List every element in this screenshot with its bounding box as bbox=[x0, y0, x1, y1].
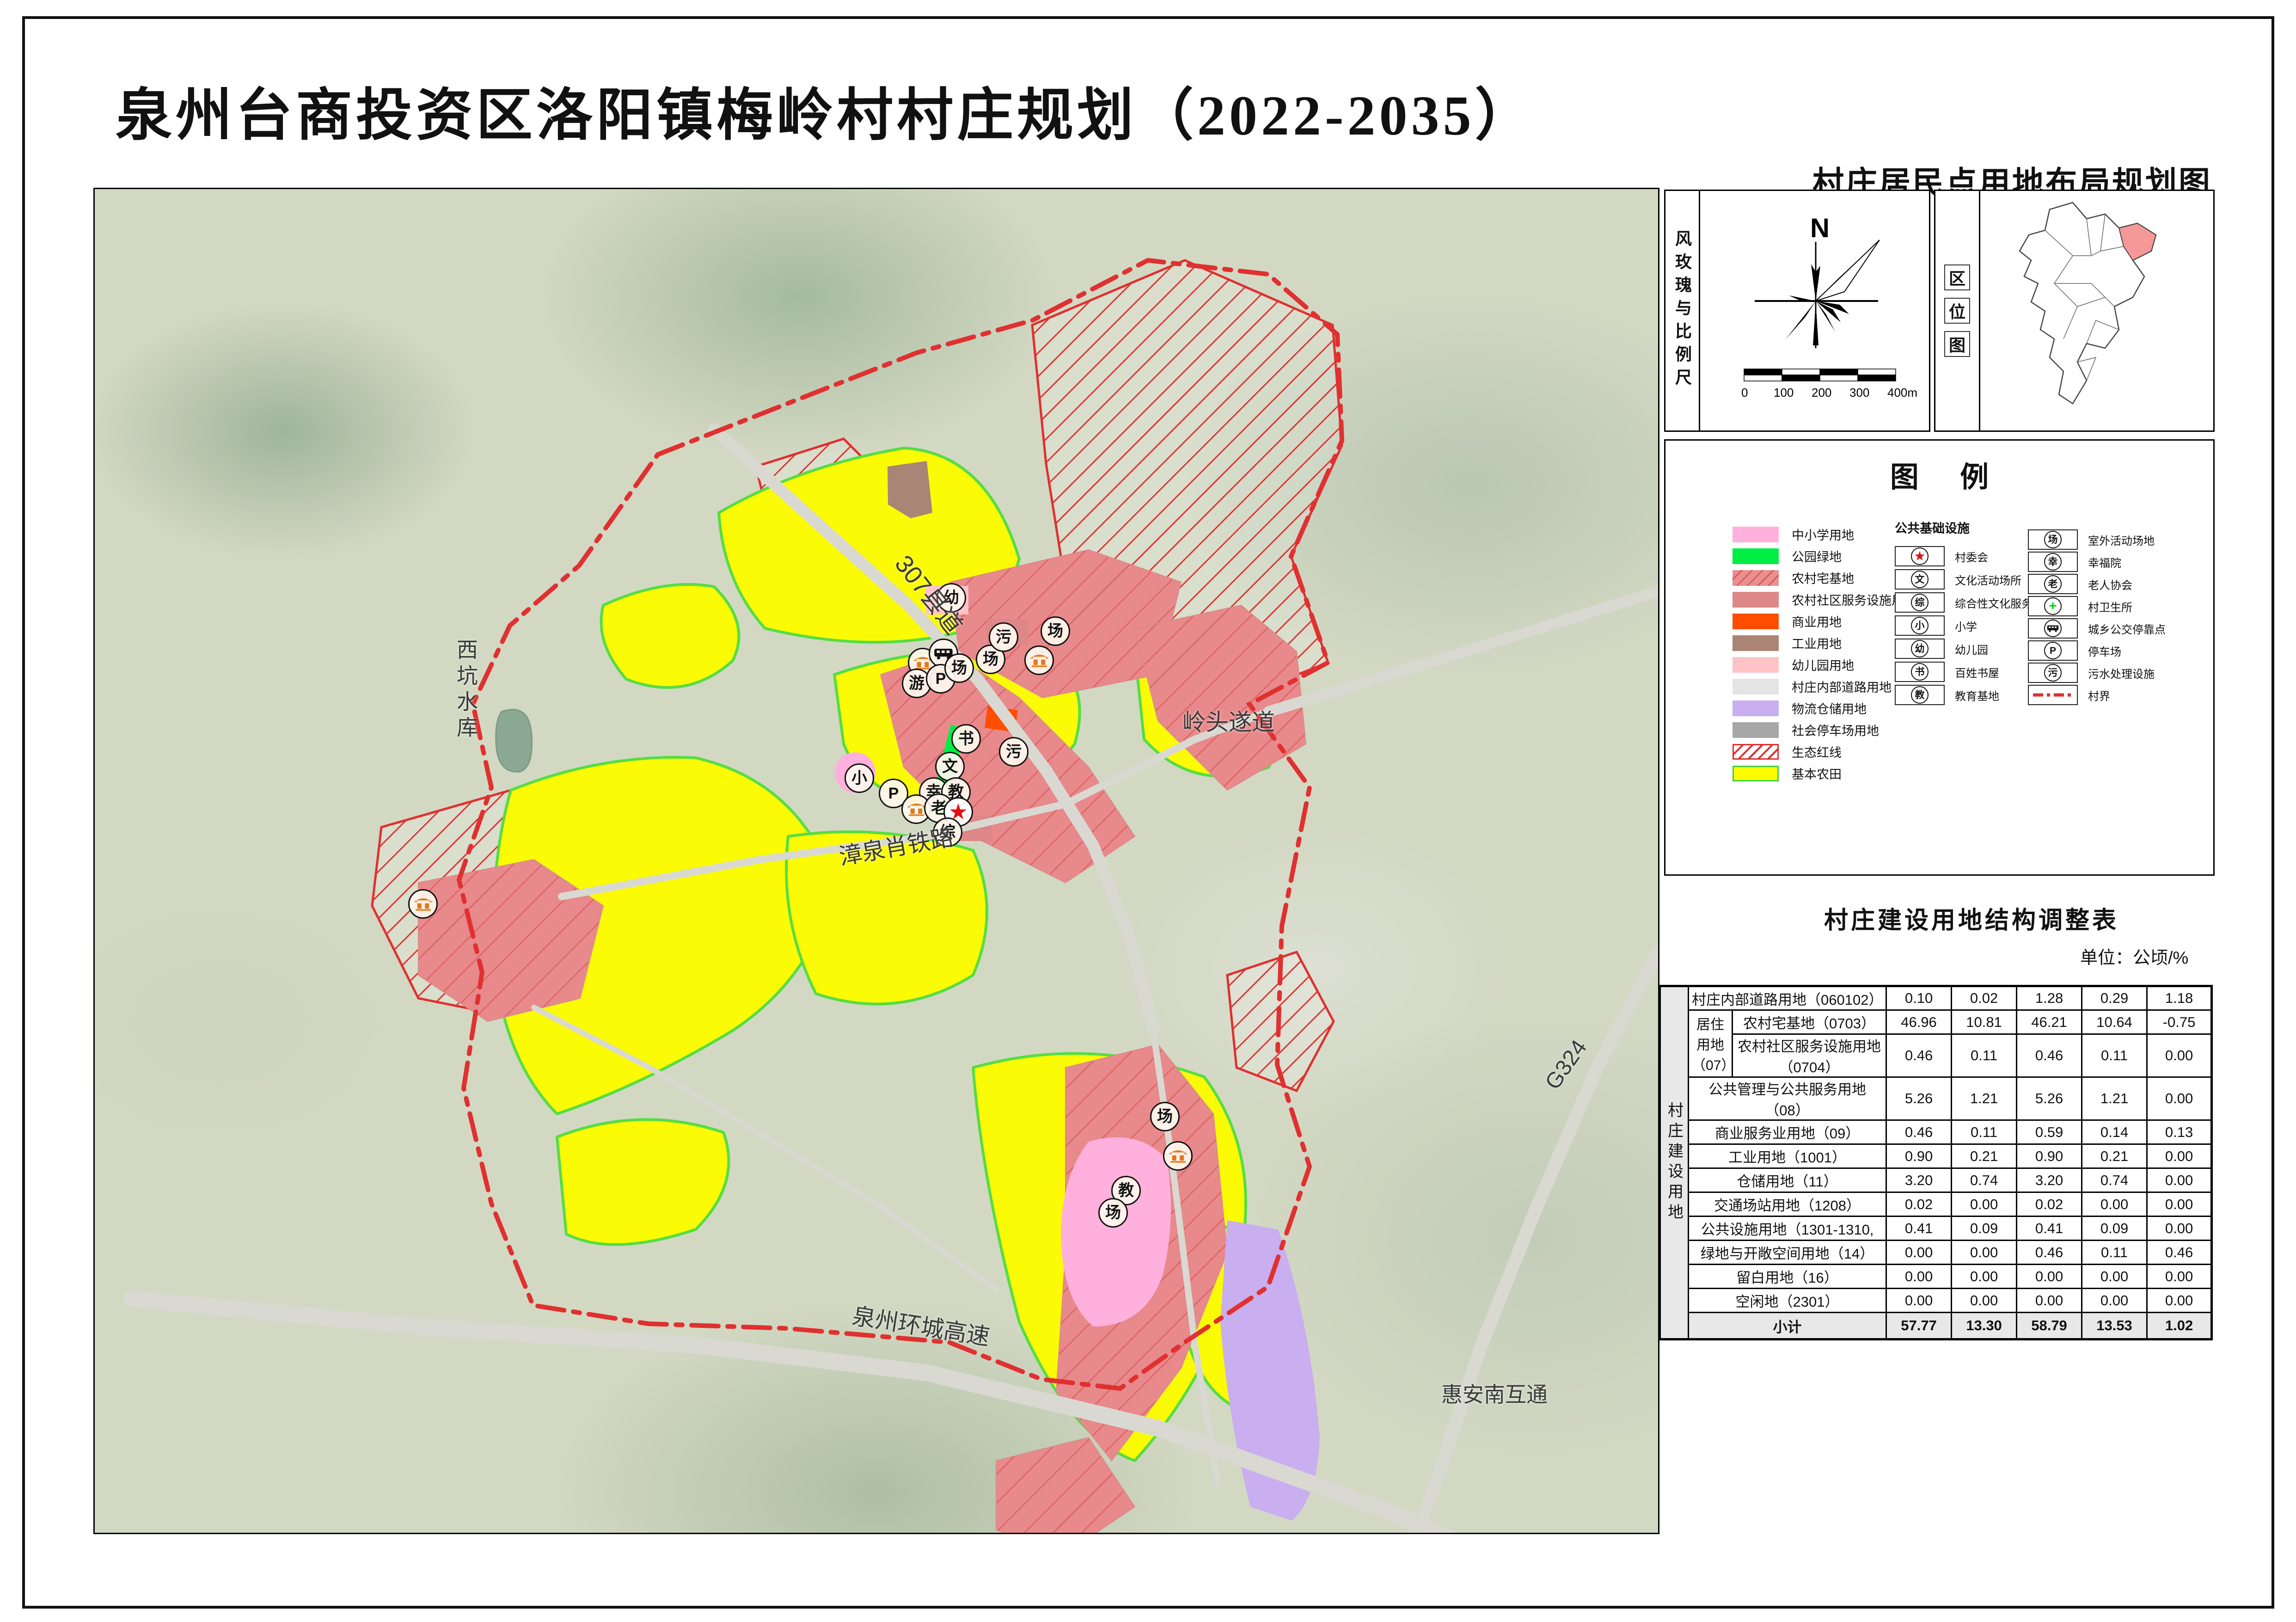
location-panel-label-strip: 区位图 bbox=[1935, 191, 1980, 430]
location-label-char: 位 bbox=[1944, 298, 1970, 324]
temple-icon bbox=[1029, 653, 1049, 668]
table-cell-value: 0.00 bbox=[2147, 1144, 2212, 1168]
map-marker-文: 文 bbox=[935, 752, 965, 781]
map-marker-场: 场 bbox=[1041, 616, 1070, 646]
legend-facility-label: 幸福院 bbox=[2088, 554, 2121, 570]
legend-land-item: 农村宅基地 bbox=[1733, 569, 1854, 587]
legend-facility-item: 文文化活动场所 bbox=[1895, 569, 2021, 590]
table-cell-value: 0.00 bbox=[1886, 1241, 1952, 1265]
table-cell-value: 1.21 bbox=[1952, 1077, 2017, 1120]
map-label: 惠安南互通 bbox=[1441, 1378, 1548, 1408]
legend-swatch bbox=[1733, 744, 1779, 760]
legend-facility-circle: 文 bbox=[1911, 571, 1929, 588]
table-cell-value: 0.11 bbox=[2082, 1241, 2147, 1265]
table-row-label: 交通场站用地（1208） bbox=[1689, 1192, 1886, 1216]
table-cell-value: 0.00 bbox=[1952, 1192, 2017, 1216]
scale-tick: 200 bbox=[1812, 386, 1831, 399]
landuse-adjustment-table: 村庄建设用地村庄内部道路用地（060102）0.100.021.280.291.… bbox=[1659, 985, 2213, 1340]
windrose-panel-label-strip: 风玫瑰与比例尺 bbox=[1665, 191, 1700, 430]
windrose-area: N bbox=[1700, 191, 1929, 430]
legend-swatch bbox=[1733, 527, 1779, 542]
table-row-label: 公共设施用地（1301-1310, bbox=[1689, 1216, 1886, 1241]
table-cell-value: 0.41 bbox=[1886, 1216, 1952, 1241]
table-cell-value: 0.21 bbox=[1952, 1144, 2017, 1168]
legend-facility-label: 村委会 bbox=[1955, 548, 1988, 565]
scale-tick: 300 bbox=[1849, 386, 1869, 399]
table-row: 空闲地（2301）0.000.000.000.000.00 bbox=[1660, 1289, 2212, 1313]
table-cell-value: 0.02 bbox=[1886, 1192, 1952, 1216]
legend-facility-symbol-box bbox=[2028, 685, 2078, 705]
legend-land-label: 社会停车场用地 bbox=[1792, 721, 1879, 739]
table-cell-value: 0.90 bbox=[2017, 1144, 2082, 1168]
table-row-label: 绿地与开敞空间用地（14） bbox=[1689, 1241, 1886, 1265]
table-row-label: 留白用地（16） bbox=[1689, 1265, 1886, 1289]
legend-land-item: 生态红线 bbox=[1733, 743, 1842, 761]
temple-icon bbox=[1168, 1149, 1188, 1163]
star-icon: ★ bbox=[1915, 551, 1925, 562]
legend-facility-label: 室外活动场地 bbox=[2088, 532, 2155, 548]
table-cell-value: 0.00 bbox=[2147, 1034, 2212, 1077]
map-marker-场: 场 bbox=[944, 653, 974, 683]
legend-facility-item: 污污水处理设施 bbox=[2028, 663, 2155, 683]
legend-facility-label: 村界 bbox=[2088, 687, 2110, 703]
table-row-label: 农村社区服务设施用地（0704） bbox=[1733, 1034, 1886, 1077]
table-cell-value: 0.02 bbox=[1952, 986, 2017, 1010]
legend-facility-circle bbox=[2044, 620, 2062, 637]
windrose-panel: 风玫瑰与比例尺 N bbox=[1664, 190, 1930, 432]
legend-facility-circle: 幸 bbox=[2044, 553, 2062, 571]
table-cell-value: 0.46 bbox=[1886, 1120, 1952, 1144]
table-cell-value: 0.00 bbox=[1886, 1265, 1952, 1289]
legend-facility-label: 停车场 bbox=[2088, 643, 2121, 659]
legend-land-item: 村庄内部道路用地 bbox=[1733, 677, 1892, 695]
map-marker-temple bbox=[1024, 645, 1054, 675]
scale-bar bbox=[1744, 369, 1896, 381]
table-cell-value: 0.11 bbox=[1952, 1034, 2017, 1077]
table-unit: 单位：公顷/% bbox=[2080, 943, 2188, 969]
map-marker-污: 污 bbox=[999, 737, 1029, 767]
location-panel: 区位图 bbox=[1934, 190, 2215, 432]
legend-facility-item: 村界 bbox=[2028, 685, 2110, 705]
table-cell-value: 0.00 bbox=[1886, 1289, 1952, 1313]
table-row: 商业服务业用地（09）0.460.110.590.140.13 bbox=[1660, 1120, 2212, 1144]
table-cell-value: 0.00 bbox=[2082, 1265, 2147, 1289]
legend-facility-symbol-box: 场 bbox=[2028, 529, 2078, 550]
legend-facility-label: 污水处理设施 bbox=[2088, 665, 2155, 681]
legend-facility-item: 幸幸福院 bbox=[2028, 552, 2121, 572]
bus-icon bbox=[2047, 624, 2059, 633]
table-cell-value: 1.21 bbox=[2082, 1077, 2147, 1120]
table-cell-value: 5.26 bbox=[2017, 1077, 2082, 1120]
legend-facility-symbol-box: 幼 bbox=[1895, 639, 1945, 659]
legend-facility-symbol-box: 文 bbox=[1895, 569, 1945, 590]
table-cell-value: 0.46 bbox=[2017, 1241, 2082, 1265]
windrose-panel-label: 风玫瑰与比例尺 bbox=[1670, 230, 1694, 392]
legend-panel: 图 例 中小学用地公园绿地农村宅基地农村社区服务设施用地商业用地工业用地幼儿园用… bbox=[1664, 439, 2215, 876]
table-cell-value: 0.09 bbox=[1952, 1216, 2017, 1241]
table-row-label: 公共管理与公共服务用地（08） bbox=[1689, 1077, 1886, 1120]
legend-swatch bbox=[1733, 657, 1779, 673]
legend-facility-circle: + bbox=[2044, 597, 2062, 615]
table-cell-value: 1.02 bbox=[2147, 1313, 2212, 1339]
map-marker-小: 小 bbox=[845, 763, 874, 793]
reservoir bbox=[496, 710, 532, 772]
map-marker-temple bbox=[408, 889, 438, 919]
legend-facility-symbol-box bbox=[2028, 618, 2078, 639]
table-cell-value: 10.81 bbox=[1952, 1010, 2017, 1034]
table-cell-value: 0.00 bbox=[2082, 1192, 2147, 1216]
table-cell-value: 0.90 bbox=[1886, 1144, 1952, 1168]
legend-facility-circle: ★ bbox=[1911, 547, 1929, 565]
location-inset-map bbox=[1980, 191, 2211, 428]
table-cell-value: 0.13 bbox=[2147, 1120, 2212, 1144]
legend-facility-label: 村卫生所 bbox=[2088, 598, 2132, 614]
legend-facility-item: 幼幼儿园 bbox=[1895, 639, 1988, 659]
table-cell-value: 0.11 bbox=[1952, 1120, 2017, 1144]
table-cell-value: 13.30 bbox=[1952, 1313, 2017, 1339]
table-cell-value: 0.46 bbox=[2017, 1034, 2082, 1077]
legend-title: 图 例 bbox=[1665, 454, 2213, 495]
table-cell-value: 58.79 bbox=[2017, 1313, 2082, 1339]
legend-land-label: 商业用地 bbox=[1792, 612, 1842, 630]
legend-facility-item: ★村委会 bbox=[1895, 546, 1988, 566]
legend-facility-circle: 场 bbox=[2044, 531, 2062, 548]
legend-land-item: 中小学用地 bbox=[1733, 525, 1854, 543]
table-cell-value: 0.21 bbox=[2082, 1144, 2147, 1168]
legend-facility-symbol-box: 综 bbox=[1895, 592, 1945, 613]
legend-facility-label: 小学 bbox=[1955, 618, 1977, 634]
planning-map: 幼游P场场污场书污文小P幸教老★综场教场 西坑水库307县道岭头遂道漳泉肖铁路泉… bbox=[93, 188, 1659, 1534]
table-cell-value: 1.18 bbox=[2147, 986, 2212, 1010]
legend-land-item: 公园绿地 bbox=[1733, 547, 1842, 565]
legend-swatch bbox=[1733, 614, 1779, 629]
table-cell-value: 0.00 bbox=[2082, 1289, 2147, 1313]
legend-swatch bbox=[1733, 722, 1779, 738]
table-total-row: 小计57.7713.3058.7913.531.02 bbox=[1660, 1313, 2212, 1339]
legend-facility-item: 老老人协会 bbox=[2028, 574, 2132, 594]
table-cell-value: 0.00 bbox=[2147, 1265, 2212, 1289]
location-label-char: 区 bbox=[1944, 264, 1970, 290]
legend-facility-symbol-box: 幸 bbox=[2028, 552, 2078, 572]
table-side-header: 村庄建设用地 bbox=[1660, 986, 1689, 1339]
table-cell-value: 13.53 bbox=[2082, 1313, 2147, 1339]
temple-icon bbox=[413, 897, 433, 911]
legend-land-item: 基本农田 bbox=[1733, 764, 1842, 782]
legend-land-label: 幼儿园用地 bbox=[1792, 656, 1854, 674]
location-label-char: 图 bbox=[1944, 331, 1970, 357]
legend-land-label: 生态红线 bbox=[1792, 743, 1842, 761]
table-cell-value: 5.26 bbox=[1886, 1077, 1952, 1120]
scale-tick: 0 bbox=[1741, 386, 1748, 399]
scale-tick: 400m bbox=[1887, 386, 1917, 399]
table-row-label: 商业服务业用地（09） bbox=[1689, 1120, 1886, 1144]
legend-land-label: 村庄内部道路用地 bbox=[1792, 677, 1892, 695]
table-row-label: 空闲地（2301） bbox=[1689, 1289, 1886, 1313]
map-marker-场: 场 bbox=[1150, 1102, 1180, 1131]
legend-facility-symbol-box: ★ bbox=[1895, 546, 1945, 566]
table-row: 居住用地（07）农村宅基地（0703）46.9610.8146.2110.64-… bbox=[1660, 1010, 2212, 1034]
map-marker-污: 污 bbox=[989, 622, 1018, 652]
map-marker-书: 书 bbox=[951, 724, 981, 754]
map-label: 岭头遂道 bbox=[1182, 704, 1275, 737]
temple-icon bbox=[906, 802, 926, 817]
table-cell-value: 0.00 bbox=[1952, 1289, 2017, 1313]
legend-facility-item: +村卫生所 bbox=[2028, 596, 2132, 616]
table-cell-value: 0.00 bbox=[1952, 1241, 2017, 1265]
legend-swatch bbox=[1733, 700, 1779, 716]
legend-land-label: 农村宅基地 bbox=[1792, 569, 1854, 587]
legend-swatch bbox=[1733, 635, 1779, 651]
table-row: 工业用地（1001）0.900.210.900.210.00 bbox=[1660, 1144, 2212, 1168]
table-cell-value: 0.41 bbox=[2017, 1216, 2082, 1241]
table-row: 农村社区服务设施用地（0704）0.460.110.460.110.00 bbox=[1660, 1034, 2212, 1077]
planning-sheet: { "page": { "title": "泉州台商投资区洛阳镇梅岭村村庄规划（… bbox=[0, 0, 2296, 1622]
table-cell-value: 0.00 bbox=[1952, 1265, 2017, 1289]
table-cell-value: 0.74 bbox=[2082, 1168, 2147, 1192]
map-marker-temple bbox=[1163, 1141, 1193, 1171]
legend-land-label: 工业用地 bbox=[1792, 634, 1842, 652]
legend-facility-symbol-box: 污 bbox=[2028, 663, 2078, 683]
legend-facility-label: 文化活动场所 bbox=[1955, 571, 2021, 588]
legend-swatch bbox=[1733, 570, 1779, 586]
north-label: N bbox=[1810, 213, 1830, 243]
legend-swatch bbox=[1733, 679, 1779, 694]
legend-swatch bbox=[1733, 548, 1779, 564]
table-cell-value: -0.75 bbox=[2147, 1010, 2212, 1034]
table-cell-value: 0.00 bbox=[2147, 1192, 2212, 1216]
table-cell-value: 1.28 bbox=[2017, 986, 2082, 1010]
table-cell-value: 0.46 bbox=[1886, 1034, 1952, 1077]
legend-land-item: 工业用地 bbox=[1733, 634, 1842, 652]
table-cell-value: 0.14 bbox=[2082, 1120, 2147, 1144]
map-marker-场: 场 bbox=[1098, 1198, 1128, 1228]
legend-facility-symbol-box: P bbox=[2028, 640, 2078, 661]
legend-land-item: 物流仓储用地 bbox=[1733, 699, 1867, 717]
table-cell-value: 46.21 bbox=[2017, 1010, 2082, 1034]
legend-facility-symbol-box: 书 bbox=[1895, 662, 1945, 682]
table-cell-value: 0.09 bbox=[2082, 1216, 2147, 1241]
health-cross-icon: + bbox=[2049, 600, 2057, 613]
page-title: 泉州台商投资区洛阳镇梅岭村村庄规划（2022-2035） bbox=[116, 69, 1535, 151]
location-panel-label: 区位图 bbox=[1944, 261, 1970, 361]
legend-facility-item: 场室外活动场地 bbox=[2028, 529, 2155, 550]
table-row: 村庄建设用地村庄内部道路用地（060102）0.100.021.280.291.… bbox=[1660, 986, 2212, 1010]
legend-swatch bbox=[1733, 592, 1779, 608]
table-cell-value: 0.00 bbox=[2017, 1265, 2082, 1289]
wind-rose bbox=[1785, 240, 1880, 345]
table-cell-value: 0.00 bbox=[2017, 1289, 2082, 1313]
legend-facility-circle: P bbox=[2044, 642, 2062, 659]
scale-tick: 100 bbox=[1774, 386, 1794, 399]
legend-facility-label: 教育基地 bbox=[1955, 687, 1999, 703]
legend-land-item: 农村社区服务设施用地 bbox=[1733, 590, 1916, 608]
table-cell-value: 0.11 bbox=[2082, 1034, 2147, 1077]
table-cell-value: 0.10 bbox=[1886, 986, 1952, 1010]
legend-land-label: 公园绿地 bbox=[1792, 547, 1842, 565]
table-row-label: 工业用地（1001） bbox=[1689, 1144, 1886, 1168]
legend-facility-label: 幼儿园 bbox=[1955, 641, 1988, 657]
table-cell-value: 0.00 bbox=[2147, 1168, 2212, 1192]
legend-facility-circle: 小 bbox=[1911, 617, 1929, 634]
table-cell-value: 10.64 bbox=[2082, 1010, 2147, 1034]
legend-land-item: 社会停车场用地 bbox=[1733, 721, 1879, 739]
legend-facility-item: 城乡公交停靠点 bbox=[2028, 618, 2166, 639]
table-cell-value: 3.20 bbox=[2017, 1168, 2082, 1192]
table-row: 留白用地（16）0.000.000.000.000.00 bbox=[1660, 1265, 2212, 1289]
table-row-label: 农村宅基地（0703） bbox=[1733, 1010, 1886, 1034]
facility-legend-header: 公共基础设施 bbox=[1895, 518, 1970, 536]
legend-facility-symbol-box: + bbox=[2028, 596, 2078, 616]
legend-facility-symbol-box: 小 bbox=[1895, 615, 1945, 636]
legend-facility-label: 百姓书屋 bbox=[1955, 664, 1999, 680]
legend-facility-circle: 幼 bbox=[1911, 640, 1929, 657]
table-row: 交通场站用地（1208）0.020.000.020.000.00 bbox=[1660, 1192, 2212, 1216]
table-cell-value: 46.96 bbox=[1886, 1010, 1952, 1034]
legend-land-label: 基本农田 bbox=[1792, 764, 1842, 782]
legend-facility-label: 城乡公交停靠点 bbox=[2088, 621, 2166, 637]
legend-facility-circle: 综 bbox=[1911, 594, 1929, 611]
table-row: 绿地与开敞空间用地（14）0.000.000.460.110.46 bbox=[1660, 1241, 2212, 1265]
map-label: 西坑水库 bbox=[451, 639, 481, 742]
table-group-header: 居住用地（07） bbox=[1689, 1010, 1733, 1077]
legend-facility-circle: 书 bbox=[1911, 663, 1929, 681]
table-cell-value: 57.77 bbox=[1886, 1313, 1952, 1339]
table-row-label: 仓储用地（11） bbox=[1689, 1168, 1886, 1192]
table-cell-value: 0.00 bbox=[2147, 1216, 2212, 1241]
table-cell-value: 0.29 bbox=[2082, 986, 2147, 1010]
table-cell-value: 0.00 bbox=[2147, 1289, 2212, 1313]
scale-tick-labels: 0100200300400m bbox=[1741, 386, 1917, 399]
table-cell-value: 0.00 bbox=[2147, 1077, 2212, 1120]
legend-land-label: 物流仓储用地 bbox=[1792, 699, 1867, 717]
legend-facility-label: 老人协会 bbox=[2088, 576, 2132, 592]
legend-land-item: 幼儿园用地 bbox=[1733, 656, 1854, 674]
legend-facility-circle: 教 bbox=[1911, 686, 1929, 704]
table-cell-value: 3.20 bbox=[1886, 1168, 1952, 1192]
legend-land-label: 中小学用地 bbox=[1792, 525, 1854, 543]
village-boundary-icon bbox=[2032, 692, 2074, 698]
legend-facility-item: P停车场 bbox=[2028, 640, 2121, 661]
legend-facility-item: 教教育基地 bbox=[1895, 685, 1999, 705]
legend-facility-circle: 老 bbox=[2044, 575, 2062, 593]
legend-facility-symbol-box: 教 bbox=[1895, 685, 1945, 705]
table-cell-value: 0.02 bbox=[2017, 1192, 2082, 1216]
legend-facility-circle: 污 bbox=[2044, 664, 2062, 682]
table-cell-value: 0.59 bbox=[2017, 1120, 2082, 1144]
legend-swatch bbox=[1733, 766, 1779, 781]
windrose-graphic: N bbox=[1700, 191, 1929, 428]
table-row-label: 村庄内部道路用地（060102） bbox=[1689, 986, 1886, 1010]
legend-facility-item: 书百姓书屋 bbox=[1895, 662, 1999, 682]
legend-facility-item: 小小学 bbox=[1895, 615, 1977, 636]
table-row: 公共设施用地（1301-1310,0.410.090.410.090.00 bbox=[1660, 1216, 2212, 1241]
table-cell-value: 0.74 bbox=[1952, 1168, 2017, 1192]
table-row: 公共管理与公共服务用地（08）5.261.215.261.210.00 bbox=[1660, 1077, 2212, 1120]
table-row-label: 小计 bbox=[1689, 1313, 1886, 1339]
legend-facility-symbol-box: 老 bbox=[2028, 574, 2078, 594]
table-row: 仓储用地（11）3.200.743.200.740.00 bbox=[1660, 1168, 2212, 1192]
table-title: 村庄建设用地结构调整表 bbox=[1824, 901, 2119, 935]
table-cell-value: 0.46 bbox=[2147, 1241, 2212, 1265]
legend-land-item: 商业用地 bbox=[1733, 612, 1842, 630]
